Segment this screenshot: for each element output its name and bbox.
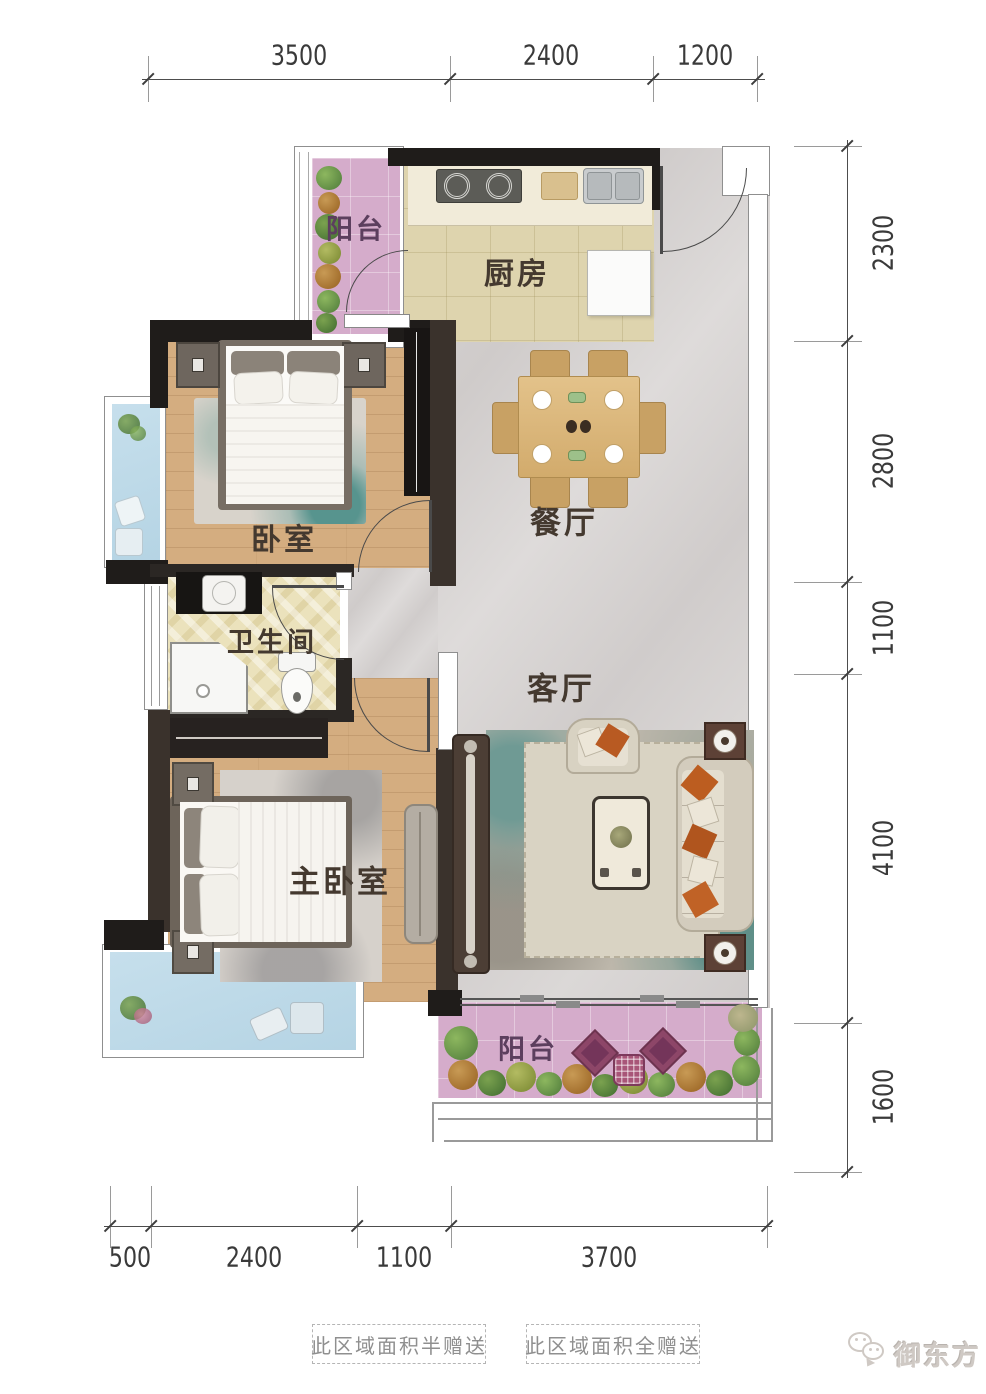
floor-plan-canvas: 阳台 厨房 卧室 餐厅 卫生间 客厅 主卧室 阳台 3500 2400 1200… (0, 0, 986, 1394)
wall (428, 990, 462, 1016)
duvet (226, 404, 344, 504)
dim-top-2: 2400 (523, 40, 579, 72)
wall (336, 658, 352, 714)
entrance-door-leaf (660, 166, 663, 254)
cushion (290, 1002, 324, 1034)
cutting-board (541, 172, 578, 200)
wardrobe (404, 328, 430, 496)
dim-right-3: 1100 (868, 600, 900, 656)
label-master-bedroom: 主卧室 (289, 857, 391, 902)
dim-bottom-2: 2400 (226, 1242, 282, 1274)
corner-plant (728, 1004, 758, 1032)
dim-bottom-4: 3700 (581, 1242, 637, 1274)
pillow (199, 805, 241, 868)
fridge (587, 250, 651, 316)
stove-burner-right (486, 173, 512, 199)
wall (388, 148, 660, 166)
pillow (288, 371, 339, 406)
wall (150, 320, 168, 408)
label-balcony-bottom: 阳台 (498, 1028, 558, 1067)
shower-drain (196, 684, 210, 698)
balcony-table (613, 1054, 645, 1086)
pillow (233, 371, 284, 406)
cushion (115, 528, 143, 556)
sink-basin-right (615, 172, 640, 200)
label-bedroom: 卧室 (251, 515, 317, 559)
dim-right-4: 4100 (868, 820, 900, 876)
stove-burner-left (444, 173, 470, 199)
balcony-door-leaf (344, 314, 410, 328)
label-living: 客厅 (527, 664, 595, 709)
dim-bottom-3: 1100 (376, 1242, 432, 1274)
dim-right-1: 2300 (868, 215, 900, 271)
corridor-floor (348, 564, 438, 682)
label-dining: 餐厅 (530, 498, 598, 543)
master-door-leaf (427, 678, 430, 752)
wall (148, 710, 170, 932)
dim-right-2: 2800 (868, 433, 900, 489)
watermark: 御东方 (846, 1328, 986, 1372)
sliding-door (460, 1004, 758, 1006)
sliding-door (460, 998, 758, 1000)
dim-right-5: 1600 (868, 1069, 900, 1125)
wall (430, 320, 456, 586)
dim-bottom-1: 500 (109, 1242, 151, 1274)
note-full-gift: 此区域面积全赠送 (526, 1324, 700, 1364)
bedroom-door-leaf (429, 500, 432, 572)
note-half-gift: 此区域面积半赠送 (312, 1324, 486, 1364)
dim-top-3: 1200 (677, 40, 733, 72)
wall (104, 920, 164, 950)
watermark-text: 御东方 (894, 1334, 981, 1373)
label-kitchen: 厨房 (484, 249, 550, 293)
pillow (199, 873, 241, 936)
sink-basin-left (587, 172, 612, 200)
label-bathroom: 卫生间 (227, 621, 317, 660)
wall (150, 320, 312, 342)
bathroom-door-leaf (272, 585, 344, 588)
wechat-icon (846, 1332, 890, 1368)
label-balcony-top: 阳台 (326, 208, 386, 247)
dim-top-1: 3500 (271, 40, 327, 72)
balcony-top-window-lines (299, 152, 309, 342)
bench (404, 804, 438, 944)
